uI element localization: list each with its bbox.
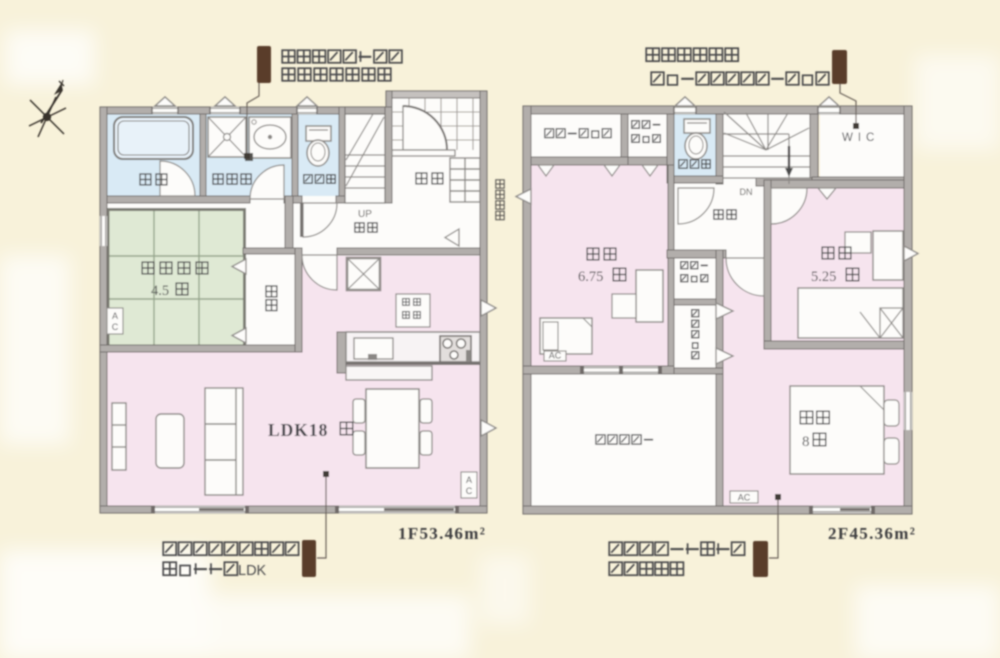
svg-text:LDK: LDK — [238, 563, 267, 579]
svg-text:1F53.46m²: 1F53.46m² — [398, 524, 486, 543]
svg-text:AC: AC — [738, 493, 751, 503]
svg-text:AC: AC — [549, 351, 562, 361]
svg-text:5.25: 5.25 — [811, 269, 836, 285]
svg-text:6.75: 6.75 — [578, 269, 603, 285]
svg-text:C: C — [112, 322, 119, 332]
svg-text:LDK18: LDK18 — [268, 420, 328, 440]
svg-text:8: 8 — [802, 434, 810, 450]
svg-text:UP: UP — [358, 209, 372, 220]
svg-text:4.5: 4.5 — [151, 283, 169, 299]
svg-text:A: A — [466, 475, 472, 485]
svg-text:WIC: WIC — [842, 132, 879, 144]
svg-text:2F45.36m²: 2F45.36m² — [828, 524, 916, 543]
svg-text:C: C — [466, 486, 473, 496]
svg-text:DN: DN — [740, 187, 753, 197]
svg-text:A: A — [112, 311, 118, 321]
